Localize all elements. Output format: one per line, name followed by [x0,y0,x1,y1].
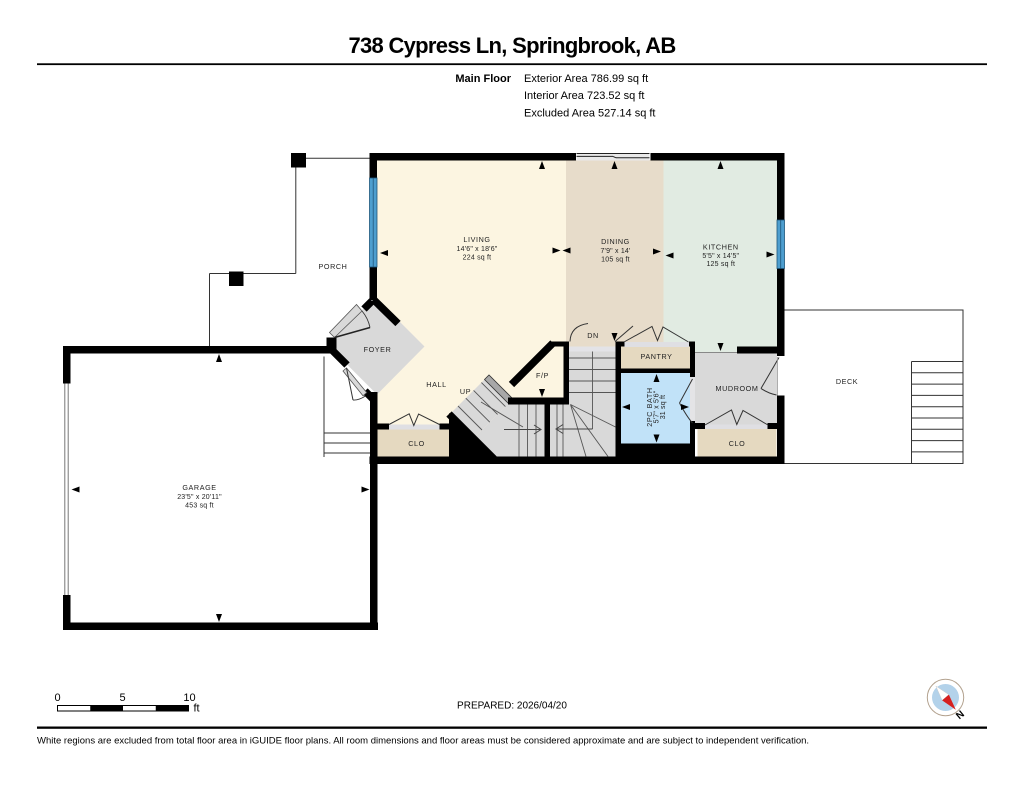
svg-text:DN: DN [587,331,599,340]
svg-text:738 Cypress Ln, Springbrook, A: 738 Cypress Ln, Springbrook, AB [348,33,675,58]
svg-text:PREPARED: 2026/04/20: PREPARED: 2026/04/20 [457,701,567,712]
svg-text:White regions are excluded fro: White regions are excluded from total fl… [37,736,809,747]
svg-text:Exterior Area 786.99 sq ft: Exterior Area 786.99 sq ft [524,73,648,85]
svg-text:LIVING: LIVING [463,235,490,244]
svg-text:224 sq ft: 224 sq ft [463,255,492,262]
svg-text:PANTRY: PANTRY [640,352,672,361]
svg-text:ft: ft [194,703,200,715]
svg-text:HALL: HALL [426,380,446,389]
svg-text:DINING: DINING [601,237,630,246]
svg-text:F/P: F/P [536,371,549,380]
svg-text:CLO: CLO [408,439,425,448]
svg-text:GARAGE: GARAGE [182,483,216,492]
svg-text:23'5" x 20'11": 23'5" x 20'11" [177,494,222,501]
svg-text:31 sq ft: 31 sq ft [660,395,667,420]
svg-text:5: 5 [119,692,125,704]
svg-text:Excluded Area 527.14 sq ft: Excluded Area 527.14 sq ft [524,107,655,119]
svg-text:CLO: CLO [729,439,746,448]
svg-text:14'6" x 18'6": 14'6" x 18'6" [457,246,498,253]
svg-text:Main Floor: Main Floor [455,73,511,85]
svg-text:0: 0 [54,692,60,704]
svg-text:KITCHEN: KITCHEN [703,243,739,252]
svg-text:2PC BATH: 2PC BATH [645,387,654,426]
svg-text:MUDROOM: MUDROOM [716,384,759,393]
svg-text:5'5" x 14'5": 5'5" x 14'5" [702,253,739,260]
svg-text:UP: UP [460,387,471,396]
svg-text:FOYER: FOYER [364,345,392,354]
svg-text:PORCH: PORCH [319,262,348,271]
svg-text:DECK: DECK [836,377,858,386]
svg-text:Interior Area 723.52 sq ft: Interior Area 723.52 sq ft [524,90,644,102]
svg-text:453 sq ft: 453 sq ft [185,503,214,510]
svg-text:125 sq ft: 125 sq ft [706,261,735,268]
svg-text:105 sq ft: 105 sq ft [601,257,630,264]
svg-text:7'9" x 14': 7'9" x 14' [600,248,630,255]
